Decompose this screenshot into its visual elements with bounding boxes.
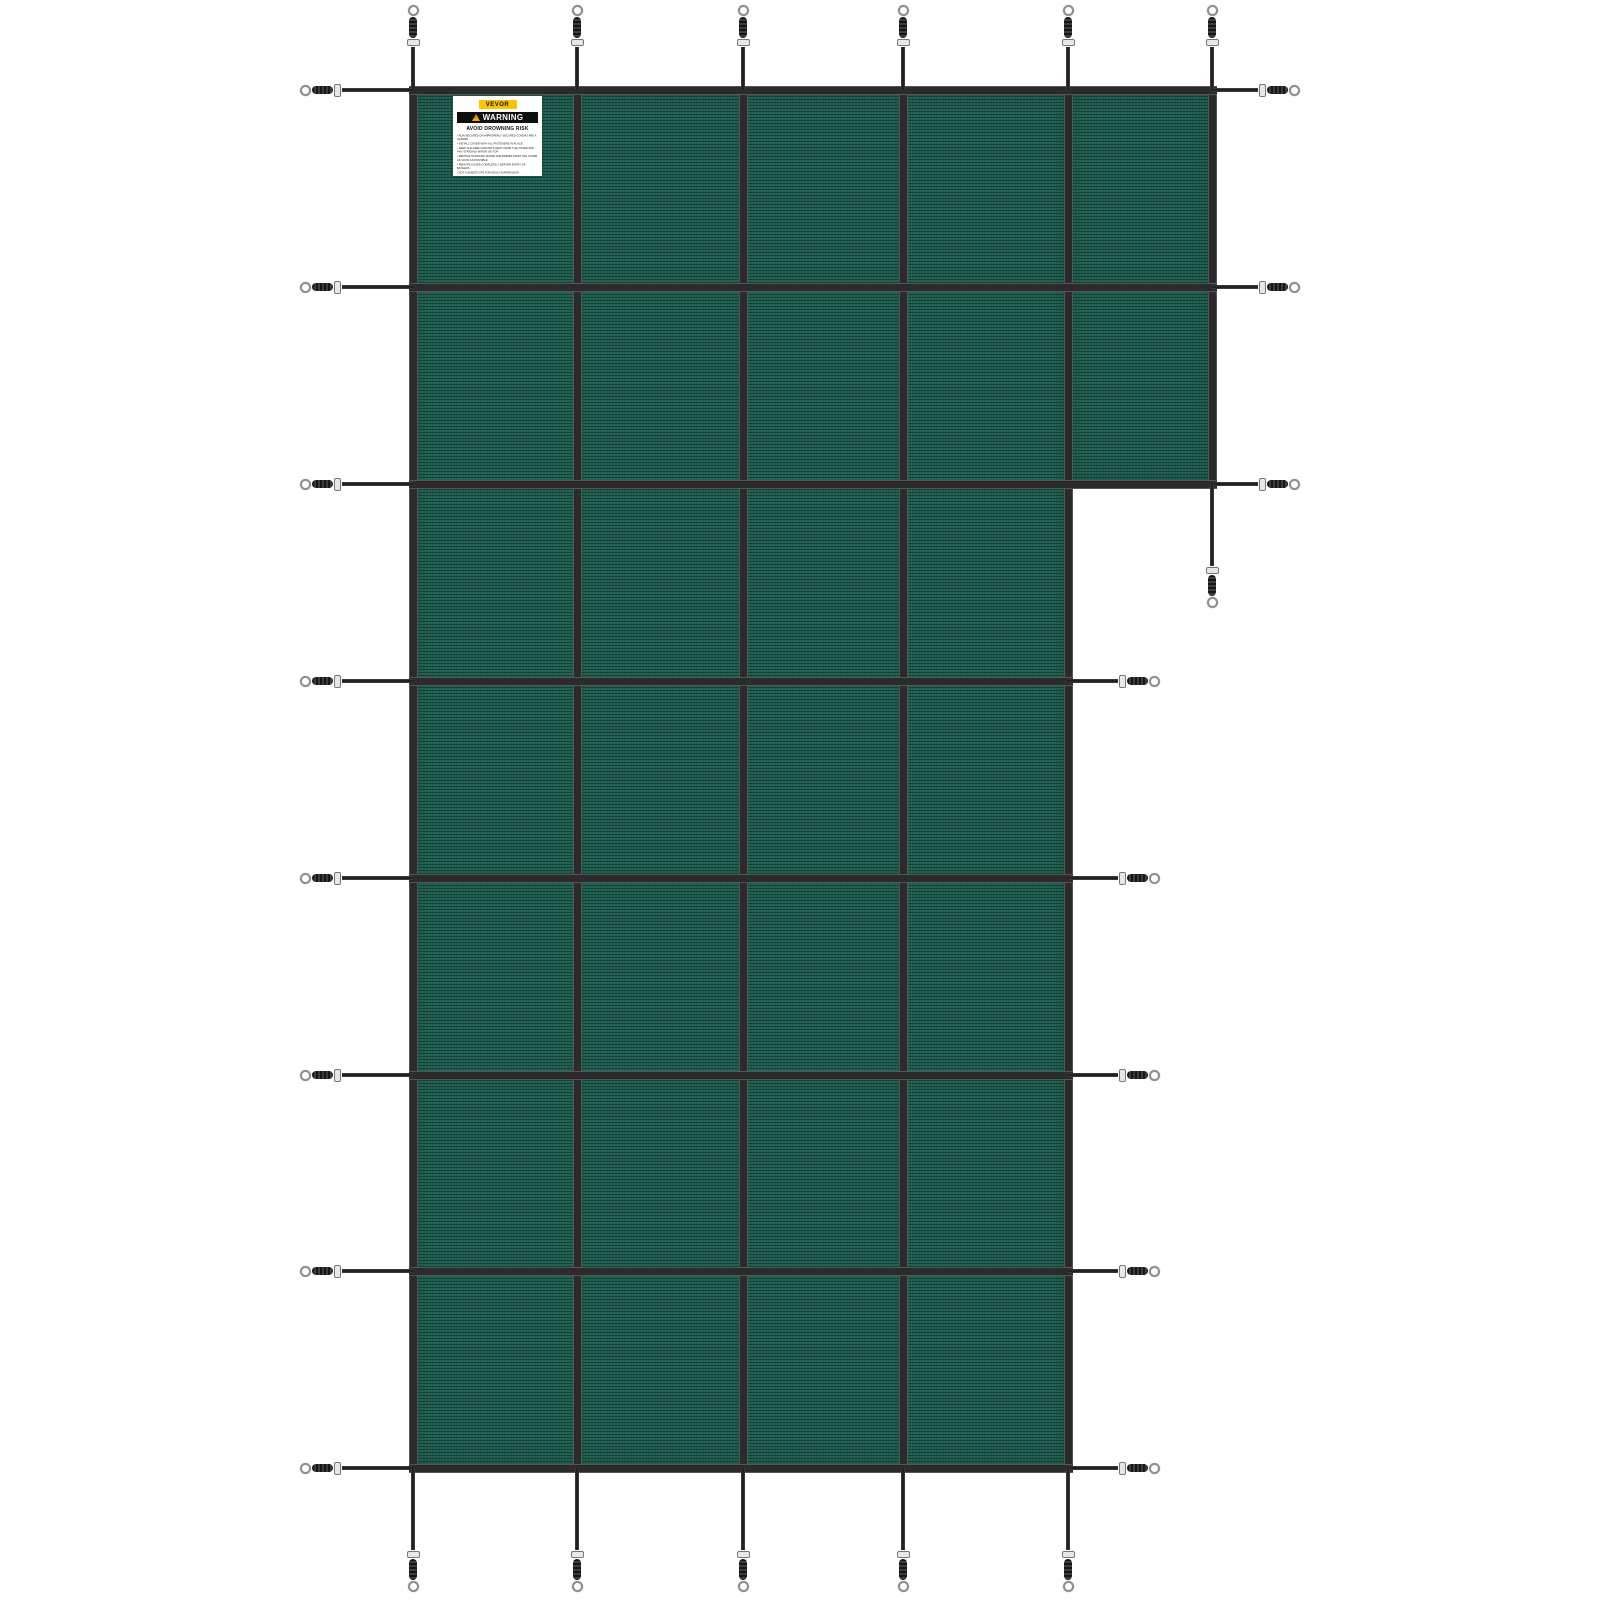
anchor-strap [342,482,413,486]
anchor-spring [312,283,333,291]
anchor-buckle [334,1069,341,1082]
anchor-buckle [1206,567,1219,574]
strap-anchor-left [300,280,413,294]
anchor-buckle [571,1551,584,1558]
anchor-ring [300,1463,311,1474]
strap-anchor-up [896,5,910,90]
anchor-strap [1066,1468,1070,1550]
grid-strap-vertical [573,86,582,1473]
anchor-buckle [1119,872,1126,885]
anchor-spring [1127,1267,1148,1275]
strap-anchor-right [1068,674,1160,688]
warning-line: • NON-SECURED OR IMPROPERLY SECURED COVE… [457,134,538,141]
strap-anchor-left [300,871,413,885]
anchor-ring [1289,85,1300,96]
warning-line: • REMOVE STANDING WATER AND DEBRIS FROM … [457,155,538,162]
anchor-ring [1289,479,1300,490]
strap-anchor-down [896,1468,910,1592]
warning-header: WARNING [457,112,538,123]
strap-anchor-right [1212,280,1300,294]
anchor-spring [1127,1464,1148,1472]
product-image-canvas: VEVOR WARNING AVOID DROWNING RISK • NON-… [0,0,1600,1600]
strap-anchor-right [1068,1461,1160,1475]
anchor-strap [1068,1073,1118,1077]
anchor-buckle [1062,1551,1075,1558]
anchor-ring [1207,5,1218,16]
anchor-buckle [1119,1462,1126,1475]
anchor-ring [898,5,909,16]
anchor-ring [572,5,583,16]
strap-anchor-down [406,1468,420,1592]
anchor-spring [1127,677,1148,685]
anchor-ring [1149,1463,1160,1474]
anchor-spring [1127,874,1148,882]
anchor-ring [898,1581,909,1592]
anchor-buckle [334,478,341,491]
anchor-buckle [334,1265,341,1278]
warning-line: • INSTALL COVER WITH ALL FASTENERS IN PL… [457,142,538,146]
anchor-buckle [334,1462,341,1475]
warning-line: • KEEP CHILDREN AND PETS AWAY FROM THE C… [457,147,538,154]
anchor-spring [1127,1071,1148,1079]
anchor-strap [575,47,579,90]
anchor-ring [1063,5,1074,16]
warning-subheading: AVOID DROWNING RISK [457,126,538,132]
anchor-spring [1208,575,1216,596]
strap-anchor-left [300,1068,413,1082]
anchor-strap [1212,285,1258,289]
anchor-spring [739,17,747,38]
anchor-buckle [737,39,750,46]
anchor-strap [575,1468,579,1550]
strap-anchor-right [1068,1264,1160,1278]
anchor-ring [408,5,419,16]
anchor-strap [901,1468,905,1550]
anchor-ring [1063,1581,1074,1592]
anchor-spring [739,1559,747,1580]
anchor-buckle [1259,84,1266,97]
anchor-strap [1068,1466,1118,1470]
anchor-buckle [897,1551,910,1558]
grid-strap-horizontal [409,874,1073,883]
anchor-ring [300,1266,311,1277]
anchor-spring [1208,17,1216,38]
anchor-strap [1068,1269,1118,1273]
anchor-strap [342,876,413,880]
anchor-buckle [334,675,341,688]
anchor-ring [1207,597,1218,608]
anchor-spring [1267,480,1288,488]
anchor-strap [342,285,413,289]
anchor-ring [1149,873,1160,884]
anchor-strap [342,679,413,683]
anchor-strap [411,1468,415,1550]
anchor-strap [1068,679,1118,683]
anchor-spring [899,1559,907,1580]
grid-strap-vertical [739,86,748,1473]
anchor-buckle [1062,39,1075,46]
grid-strap-horizontal [409,283,1217,292]
anchor-ring [738,1581,749,1592]
pool-safety-cover [0,0,1600,1600]
anchor-strap [1210,484,1214,566]
grid-strap-horizontal [409,480,1217,489]
strap-anchor-down [1205,484,1219,608]
strap-anchor-left [300,477,413,491]
anchor-strap [1066,47,1070,90]
anchor-ring [1289,282,1300,293]
grid-strap-vertical [899,86,908,1473]
anchor-buckle [1259,281,1266,294]
anchor-buckle [571,39,584,46]
anchor-spring [409,17,417,38]
warning-line: • REMOVE COVER COMPLETELY BEFORE ENTRY O… [457,163,538,170]
grid-strap-horizontal [409,677,1073,686]
anchor-spring [312,480,333,488]
anchor-buckle [334,872,341,885]
anchor-buckle [1259,478,1266,491]
anchor-spring [573,1559,581,1580]
warning-body-text: • NON-SECURED OR IMPROPERLY SECURED COVE… [457,134,538,175]
anchor-buckle [737,1551,750,1558]
warning-label: VEVOR WARNING AVOID DROWNING RISK • NON-… [453,96,542,176]
anchor-ring [572,1581,583,1592]
strap-anchor-up [1205,5,1219,90]
strap-anchor-left [300,674,413,688]
anchor-strap [342,1466,413,1470]
strap-anchor-left [300,1264,413,1278]
anchor-spring [312,1071,333,1079]
anchor-buckle [407,1551,420,1558]
anchor-buckle [1119,1069,1126,1082]
anchor-spring [899,17,907,38]
anchor-strap [342,88,413,92]
anchor-strap [342,1269,413,1273]
anchor-ring [300,479,311,490]
anchor-spring [312,1464,333,1472]
anchor-spring [573,17,581,38]
strap-anchor-up [1061,5,1075,90]
anchor-buckle [1206,39,1219,46]
anchor-ring [738,5,749,16]
anchor-strap [901,47,905,90]
anchor-spring [312,677,333,685]
anchor-ring [300,676,311,687]
strap-anchor-down [736,1468,750,1592]
anchor-strap [342,1073,413,1077]
anchor-buckle [897,39,910,46]
strap-anchor-up [736,5,750,90]
vevor-logo: VEVOR [479,100,517,109]
warning-line: • NOT A SUBSTITUTE FOR ADULT SUPERVISION [457,171,538,175]
anchor-strap [411,47,415,90]
anchor-buckle [407,39,420,46]
anchor-spring [312,1267,333,1275]
warning-triangle-icon [472,114,480,121]
anchor-ring [300,282,311,293]
anchor-strap [741,1468,745,1550]
warning-heading: WARNING [483,114,524,122]
anchor-ring [1149,1070,1160,1081]
anchor-spring [1267,283,1288,291]
anchor-strap [1068,876,1118,880]
anchor-buckle [1119,675,1126,688]
anchor-ring [1149,1266,1160,1277]
strap-anchor-right [1212,83,1300,97]
grid-strap-horizontal [409,1071,1073,1080]
anchor-ring [300,85,311,96]
strap-anchor-right [1212,477,1300,491]
anchor-spring [1064,17,1072,38]
strap-anchor-down [1061,1468,1075,1592]
anchor-ring [408,1581,419,1592]
anchor-buckle [1119,1265,1126,1278]
anchor-buckle [334,84,341,97]
grid-strap-horizontal [409,1267,1073,1276]
strap-anchor-left [300,83,413,97]
anchor-spring [1064,1559,1072,1580]
strap-anchor-right [1068,1068,1160,1082]
anchor-buckle [334,281,341,294]
anchor-ring [1149,676,1160,687]
strap-anchor-up [406,5,420,90]
anchor-strap [1210,47,1214,90]
strap-anchor-up [570,5,584,90]
anchor-spring [409,1559,417,1580]
anchor-spring [1267,86,1288,94]
anchor-spring [312,86,333,94]
strap-anchor-right [1068,871,1160,885]
strap-anchor-down [570,1468,584,1592]
anchor-strap [741,47,745,90]
anchor-ring [300,873,311,884]
anchor-ring [300,1070,311,1081]
vevor-logo-text: VEVOR [486,102,510,108]
anchor-spring [312,874,333,882]
grid-strap-horizontal [409,86,1217,95]
strap-anchor-left [300,1461,413,1475]
